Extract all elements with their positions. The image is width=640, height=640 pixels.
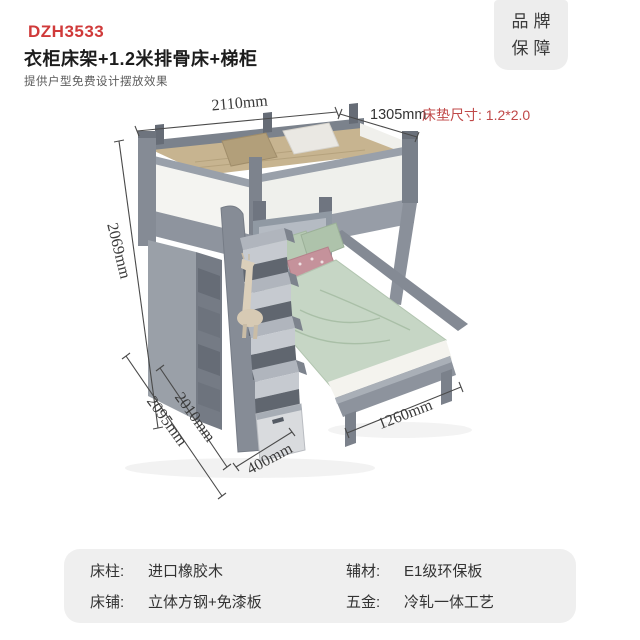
spec-label: 床柱:	[90, 560, 148, 581]
product-page: DZH3533 衣柜床架+1.2米排骨床+梯柜 提供户型免费设计摆放效果 品牌 …	[0, 0, 640, 640]
dimension-height: 2069mm	[103, 221, 133, 281]
dimension-top-width: 2110mm	[211, 93, 269, 115]
mattress-size-note: 床垫尺寸: 1.2*2.0	[422, 107, 530, 123]
spec-label: 辅材:	[346, 560, 404, 581]
product-dimension-diagram: 2110mm 1305mm 床垫尺寸: 1.2*2.0 2069mm 2095m…	[0, 0, 640, 640]
spec-value: E1级环保板	[404, 560, 482, 581]
spec-value: 冷轧一体工艺	[404, 591, 494, 612]
spec-value: 进口橡胶木	[148, 560, 223, 581]
spec-auxiliary-material: 辅材: E1级环保板	[320, 560, 576, 581]
spec-hardware: 五金: 冷轧一体工艺	[320, 591, 576, 612]
spec-bed-post: 床柱: 进口橡胶木	[64, 560, 320, 581]
spec-label: 床铺:	[90, 591, 148, 612]
spec-value: 立体方钢+免漆板	[148, 591, 262, 612]
dimension-top-depth: 1305mm	[370, 107, 426, 123]
spec-bed-base: 床铺: 立体方钢+免漆板	[64, 591, 320, 612]
spec-label: 五金:	[346, 591, 404, 612]
spec-panel: 床柱: 进口橡胶木 辅材: E1级环保板 床铺: 立体方钢+免漆板 五金: 冷轧…	[64, 549, 576, 623]
